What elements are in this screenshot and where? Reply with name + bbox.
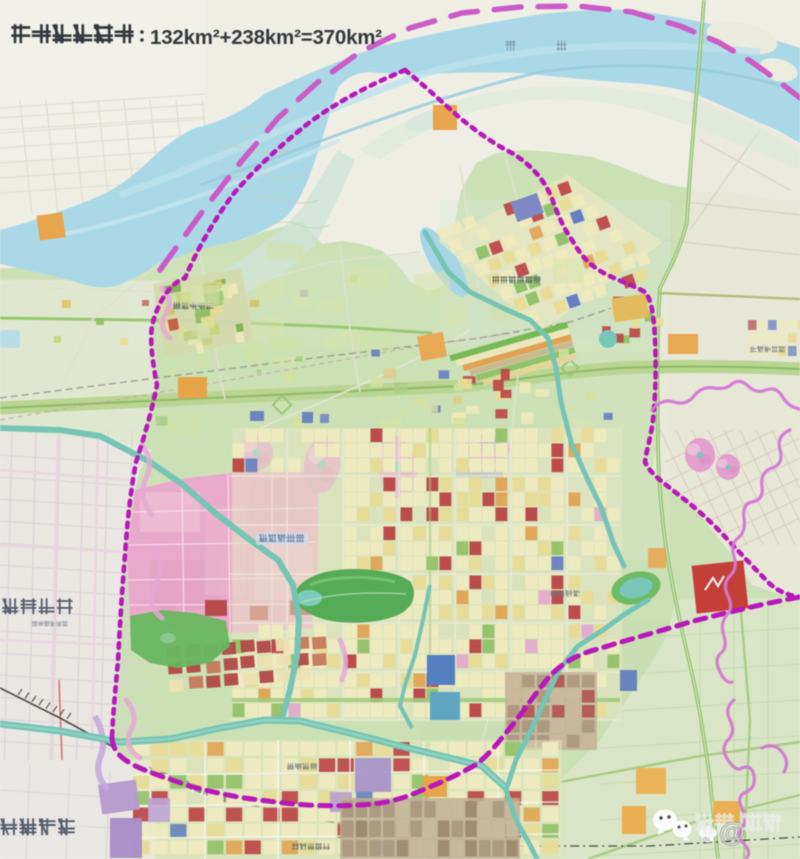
svg-text:@: @ — [719, 817, 745, 847]
svg-text:du: du — [703, 837, 710, 843]
svg-text:132km²+238km²=370km²: 132km²+238km²=370km² — [150, 26, 382, 49]
